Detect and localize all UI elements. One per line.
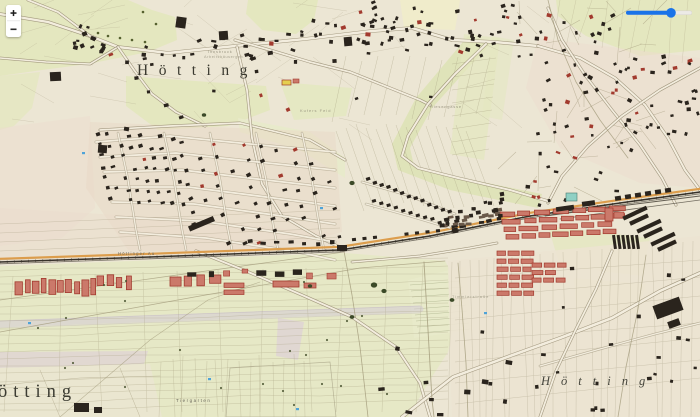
svg-text:Innsbruck: Innsbruck: [208, 49, 233, 54]
svg-text:Kufers Feld: Kufers Feld: [300, 108, 331, 113]
svg-text:ötting: ötting: [0, 382, 77, 402]
svg-text:Tiergarten: Tiergarten: [176, 398, 211, 403]
svg-text:Riesengasse: Riesengasse: [430, 104, 462, 109]
svg-text:Hötting: Hötting: [540, 374, 656, 388]
svg-text:Hötting: Hötting: [137, 62, 258, 79]
svg-text:Arbeitshäusergeb.: Arbeitshäusergeb.: [204, 55, 245, 59]
svg-text:Höttinger Au: Höttinger Au: [118, 251, 155, 256]
svg-text:Timmlerstraße: Timmlerstraße: [452, 295, 489, 299]
